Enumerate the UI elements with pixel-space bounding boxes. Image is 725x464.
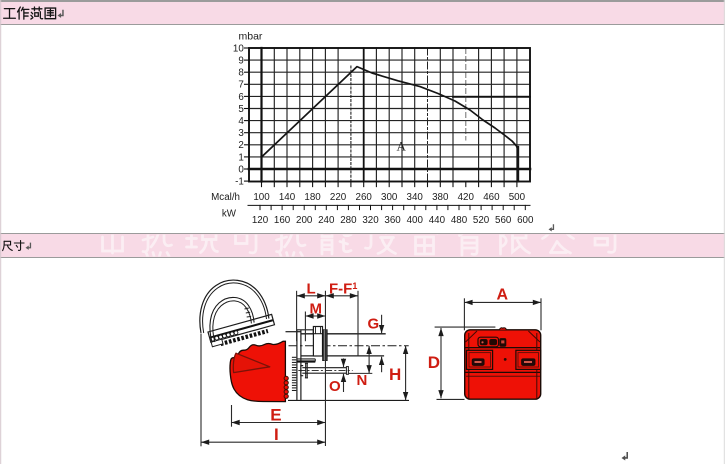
svg-text:5: 5 bbox=[238, 104, 244, 115]
svg-text:260: 260 bbox=[356, 192, 373, 203]
svg-text:280: 280 bbox=[340, 215, 357, 226]
svg-text:mbar: mbar bbox=[239, 31, 263, 43]
svg-text:7: 7 bbox=[238, 80, 243, 91]
svg-text:3: 3 bbox=[238, 128, 244, 139]
svg-text:460: 460 bbox=[483, 192, 500, 203]
svg-text:500: 500 bbox=[509, 192, 526, 203]
svg-text:100: 100 bbox=[253, 192, 270, 203]
svg-text:4: 4 bbox=[238, 116, 244, 127]
svg-text:180: 180 bbox=[304, 192, 321, 203]
svg-text:L: L bbox=[307, 281, 316, 298]
svg-text:200: 200 bbox=[296, 215, 313, 226]
svg-text:A: A bbox=[497, 287, 509, 304]
svg-text:10: 10 bbox=[233, 43, 244, 54]
svg-text:0: 0 bbox=[238, 164, 244, 175]
svg-text:D: D bbox=[428, 353, 440, 372]
svg-text:320: 320 bbox=[362, 215, 379, 226]
svg-text:N: N bbox=[357, 372, 368, 389]
svg-text:240: 240 bbox=[318, 215, 335, 226]
svg-text:480: 480 bbox=[451, 215, 468, 226]
svg-text:340: 340 bbox=[407, 192, 424, 203]
svg-text:H: H bbox=[389, 365, 401, 384]
svg-text:360: 360 bbox=[384, 215, 401, 226]
svg-text:M: M bbox=[310, 301, 323, 318]
svg-text:220: 220 bbox=[330, 192, 347, 203]
svg-text:600: 600 bbox=[517, 215, 534, 226]
svg-text:G: G bbox=[368, 316, 380, 333]
svg-text:E: E bbox=[270, 406, 281, 425]
svg-text:380: 380 bbox=[432, 192, 449, 203]
svg-text:6: 6 bbox=[238, 92, 244, 103]
svg-text:560: 560 bbox=[495, 215, 512, 226]
svg-text:9: 9 bbox=[238, 56, 243, 67]
svg-text:1: 1 bbox=[238, 152, 243, 163]
svg-text:Mcal/h: Mcal/h bbox=[211, 192, 240, 203]
svg-text:8: 8 bbox=[238, 68, 244, 79]
svg-text:2: 2 bbox=[238, 140, 243, 151]
svg-text:440: 440 bbox=[429, 215, 446, 226]
svg-text:A: A bbox=[397, 139, 407, 154]
svg-text:300: 300 bbox=[381, 192, 398, 203]
svg-text:400: 400 bbox=[407, 215, 424, 226]
svg-text:120: 120 bbox=[252, 215, 269, 226]
svg-text:O: O bbox=[329, 378, 341, 395]
svg-text:420: 420 bbox=[458, 192, 475, 203]
svg-text:160: 160 bbox=[274, 215, 291, 226]
svg-text:I: I bbox=[274, 425, 279, 444]
svg-text:-1: -1 bbox=[235, 177, 244, 188]
svg-text:520: 520 bbox=[473, 215, 490, 226]
svg-text:140: 140 bbox=[279, 192, 296, 203]
svg-text:kW: kW bbox=[222, 209, 237, 220]
